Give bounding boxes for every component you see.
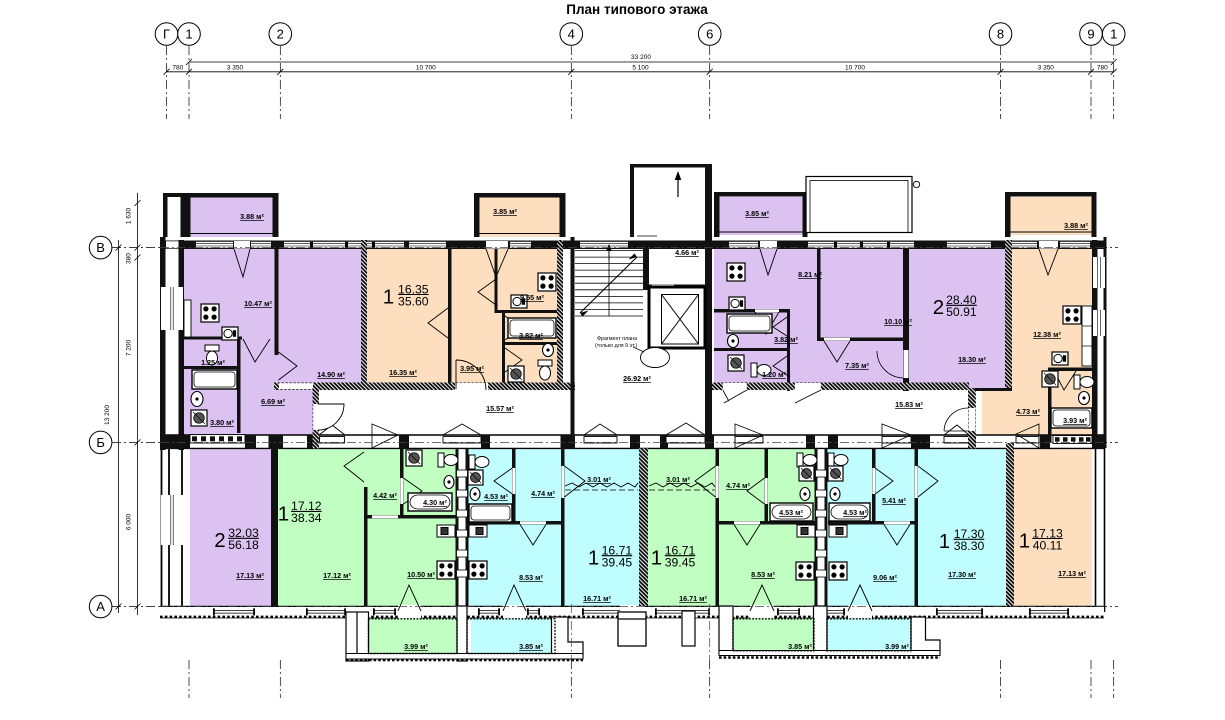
svg-text:10.50 м²: 10.50 м² (407, 570, 435, 579)
svg-text:33 200: 33 200 (631, 54, 651, 61)
svg-text:2: 2 (214, 529, 225, 552)
svg-text:7.35 м²: 7.35 м² (845, 361, 869, 370)
svg-text:2: 2 (277, 27, 284, 42)
svg-text:1: 1 (939, 530, 950, 553)
svg-text:А: А (96, 599, 105, 614)
svg-text:9.06 м²: 9.06 м² (873, 573, 897, 582)
svg-text:9.55 м²: 9.55 м² (520, 293, 544, 302)
svg-text:3.88 м²: 3.88 м² (1064, 221, 1088, 230)
svg-text:(только для 9 эт.): (только для 9 эт.) (595, 343, 637, 349)
svg-text:1: 1 (1110, 27, 1117, 42)
svg-text:1: 1 (588, 547, 599, 570)
svg-text:1.25 м²: 1.25 м² (201, 358, 225, 367)
svg-text:18.30 м²: 18.30 м² (958, 355, 986, 364)
svg-text:3.85 м²: 3.85 м² (493, 207, 517, 216)
svg-text:380: 380 (126, 253, 133, 264)
svg-text:12.38 м²: 12.38 м² (1033, 330, 1061, 339)
svg-text:Г: Г (163, 27, 170, 42)
svg-text:Фрагмент плана: Фрагмент плана (597, 336, 637, 342)
svg-text:16.35 м²: 16.35 м² (389, 368, 417, 377)
svg-text:7 200: 7 200 (126, 339, 133, 356)
svg-text:38.34: 38.34 (291, 511, 322, 525)
svg-text:В: В (96, 240, 105, 255)
svg-text:3.85 м²: 3.85 м² (788, 642, 812, 651)
svg-text:50.91: 50.91 (946, 305, 977, 319)
svg-text:17.13 м²: 17.13 м² (236, 571, 264, 580)
svg-text:8: 8 (997, 27, 1004, 42)
svg-text:1: 1 (185, 27, 192, 42)
svg-text:3.99 м²: 3.99 м² (404, 642, 428, 651)
svg-text:15.83 м²: 15.83 м² (895, 400, 923, 409)
svg-text:3 350: 3 350 (227, 64, 244, 71)
svg-text:1: 1 (651, 547, 662, 570)
svg-text:6.69 м²: 6.69 м² (261, 397, 285, 406)
svg-text:39.45: 39.45 (665, 556, 696, 570)
svg-text:8.53 м²: 8.53 м² (751, 570, 775, 579)
svg-text:4.30 м²: 4.30 м² (423, 498, 447, 507)
svg-text:5.41 м²: 5.41 м² (882, 496, 906, 505)
svg-text:4.73 м²: 4.73 м² (1016, 407, 1040, 416)
svg-text:3.82 м²: 3.82 м² (519, 331, 543, 340)
svg-text:8.53 м²: 8.53 м² (519, 573, 543, 582)
svg-text:10 700: 10 700 (845, 64, 865, 71)
svg-text:3 350: 3 350 (1038, 64, 1055, 71)
svg-text:4.42 м²: 4.42 м² (373, 491, 397, 500)
svg-text:3.85 м²: 3.85 м² (745, 209, 769, 218)
svg-text:10.10 м²: 10.10 м² (884, 317, 912, 326)
svg-text:3.85 м²: 3.85 м² (519, 642, 543, 651)
svg-text:17.12 м²: 17.12 м² (323, 571, 351, 580)
svg-text:6 000: 6 000 (126, 513, 133, 530)
svg-text:13 200: 13 200 (104, 405, 111, 425)
svg-text:56.18: 56.18 (228, 538, 259, 552)
svg-text:16.71 м²: 16.71 м² (679, 594, 707, 603)
svg-text:4: 4 (568, 27, 575, 42)
svg-text:17.13 м²: 17.13 м² (1058, 569, 1086, 578)
svg-text:1: 1 (1019, 529, 1030, 552)
svg-text:16.71 м²: 16.71 м² (583, 594, 611, 603)
svg-text:780: 780 (172, 64, 183, 71)
svg-text:1: 1 (278, 502, 289, 525)
svg-text:3.01 м²: 3.01 м² (666, 475, 690, 484)
svg-text:10.47 м²: 10.47 м² (244, 299, 272, 308)
svg-text:1.20 м²: 1.20 м² (762, 370, 786, 379)
svg-text:4.74 м²: 4.74 м² (726, 481, 750, 490)
svg-text:14.90 м²: 14.90 м² (317, 370, 345, 379)
svg-text:15.57 м²: 15.57 м² (486, 404, 514, 413)
svg-text:3.99 м²: 3.99 м² (885, 642, 909, 651)
svg-text:3.95 м²: 3.95 м² (460, 364, 484, 373)
svg-text:Б: Б (96, 435, 105, 450)
svg-text:26.92 м²: 26.92 м² (623, 374, 651, 383)
svg-text:38.30: 38.30 (954, 539, 985, 553)
svg-text:3.88 м²: 3.88 м² (240, 212, 264, 221)
svg-text:8.21 м²: 8.21 м² (798, 270, 822, 279)
svg-text:35.60: 35.60 (398, 294, 429, 308)
svg-text:3.82 м²: 3.82 м² (774, 335, 798, 344)
svg-text:4.66 м²: 4.66 м² (675, 248, 699, 257)
svg-text:4.53 м²: 4.53 м² (484, 492, 508, 501)
svg-text:3.93 м²: 3.93 м² (1063, 416, 1087, 425)
svg-text:40.11: 40.11 (1033, 538, 1063, 552)
svg-text:5 100: 5 100 (632, 64, 649, 71)
svg-text:17.30 м²: 17.30 м² (948, 570, 976, 579)
svg-text:3.01 м²: 3.01 м² (587, 475, 611, 484)
svg-text:План типового этажа: План типового этажа (566, 2, 708, 17)
svg-text:3.80 м²: 3.80 м² (210, 418, 234, 427)
svg-text:4.53 м²: 4.53 м² (779, 508, 803, 517)
svg-text:1 630: 1 630 (126, 207, 133, 224)
svg-text:10 700: 10 700 (416, 64, 436, 71)
svg-text:4.53 м²: 4.53 м² (843, 508, 867, 517)
svg-text:6: 6 (706, 27, 713, 42)
svg-text:1: 1 (383, 285, 394, 308)
svg-text:9: 9 (1087, 27, 1094, 42)
svg-text:2: 2 (933, 296, 944, 319)
svg-text:39.45: 39.45 (602, 556, 633, 570)
svg-text:4.74 м²: 4.74 м² (531, 489, 555, 498)
svg-text:780: 780 (1097, 64, 1108, 71)
